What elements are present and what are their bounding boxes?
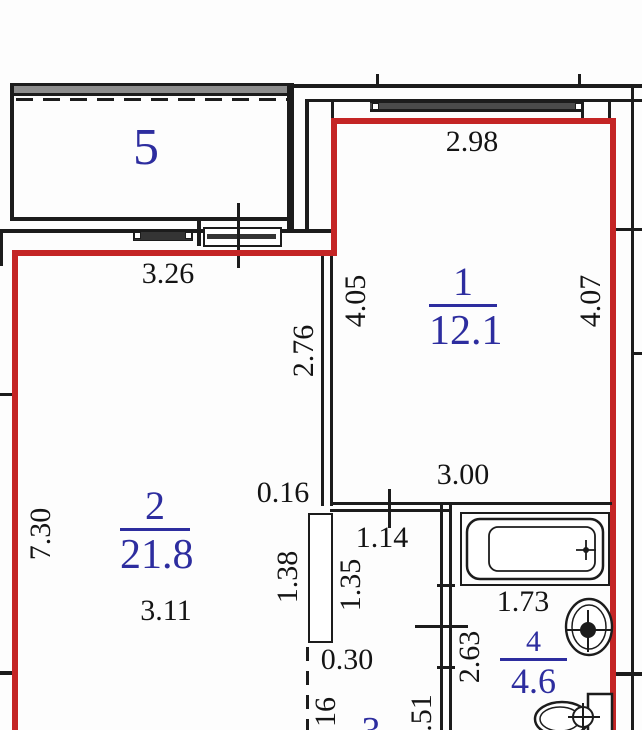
room2-area: 21.8 bbox=[120, 531, 190, 576]
dim-room1-right-height: 4.07 bbox=[576, 275, 606, 328]
bathtub-icon bbox=[467, 519, 603, 579]
dim-room2-bottom-width: 3.11 bbox=[140, 596, 191, 626]
dim-room1-bottom-width: 3.00 bbox=[437, 460, 490, 490]
dim-partial-bottom-left: 16 bbox=[311, 697, 341, 727]
room1-number: 1 bbox=[429, 262, 497, 307]
room1-area: 12.1 bbox=[429, 307, 497, 352]
dim-room1-top-width: 2.98 bbox=[446, 127, 499, 157]
room2-label: 2 21.8 bbox=[120, 486, 190, 576]
bathroom-number: 4 bbox=[500, 627, 567, 661]
dim-room2-wall-upper: 2.76 bbox=[289, 325, 319, 378]
bathroom-label: 4 4.6 bbox=[500, 627, 567, 699]
room5-number: 5 bbox=[133, 122, 159, 174]
dim-balcony-width: 3.26 bbox=[142, 259, 195, 289]
sink-icon bbox=[566, 599, 613, 655]
fixtures-layer bbox=[0, 0, 642, 730]
room3-number: 3 bbox=[362, 712, 381, 730]
dim-room2-left-height: 7.30 bbox=[26, 508, 56, 561]
room2-number: 2 bbox=[120, 486, 190, 531]
dim-bath-top-width: 1.73 bbox=[497, 587, 550, 617]
dim-bath-right-height: 2.63 bbox=[455, 631, 485, 684]
dim-room1-left-height: 4.05 bbox=[341, 275, 371, 328]
dim-room2-pier-length: 1.38 bbox=[273, 551, 303, 604]
room1-label: 1 12.1 bbox=[429, 262, 497, 352]
floor-plan: 5 1 12.1 2 21.8 4 4.6 3 3.26 2.98 4.05 2… bbox=[0, 0, 642, 730]
dim-hall-top-width: 1.14 bbox=[356, 523, 409, 553]
bathroom-area: 4.6 bbox=[500, 661, 567, 699]
dim-partial-bottom-mid: .51 bbox=[407, 694, 437, 730]
dim-wall-offset: 0.16 bbox=[257, 478, 310, 508]
dim-hall-pier-length: 1.35 bbox=[336, 559, 366, 612]
dim-hall-gap: 0.30 bbox=[321, 645, 374, 675]
